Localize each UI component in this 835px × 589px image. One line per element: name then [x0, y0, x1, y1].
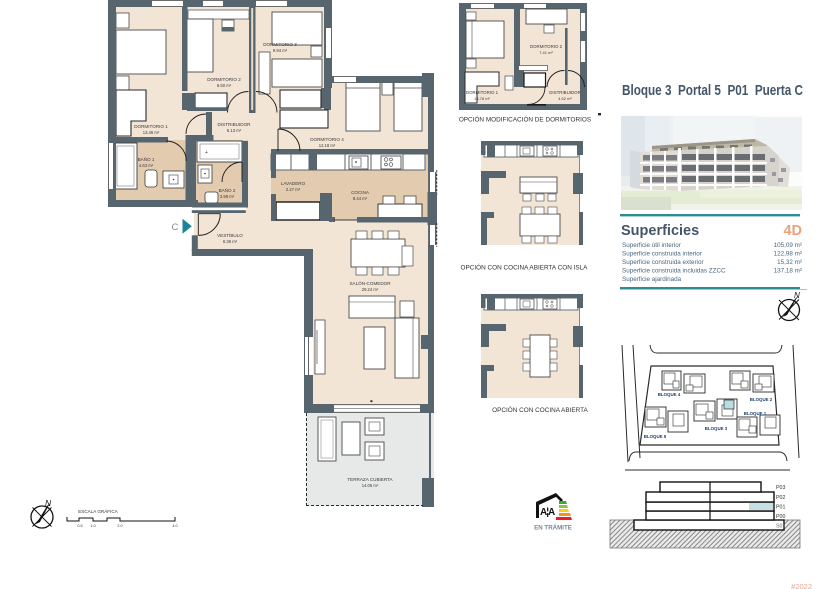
svg-text:DISTRIBUIDOR: DISTRIBUIDOR: [218, 122, 252, 127]
svg-text:8.50 m²: 8.50 m²: [217, 83, 232, 88]
svg-text:DORMITORIO 2: DORMITORIO 2: [530, 44, 563, 49]
svg-text:C: C: [172, 222, 179, 233]
svg-text:P01: P01: [776, 505, 785, 511]
svg-text:DORMITORIO 3: DORMITORIO 3: [263, 42, 297, 47]
svg-text:4.0: 4.0: [172, 524, 177, 528]
svg-text:DISTRIBUIDOR: DISTRIBUIDOR: [549, 90, 580, 95]
svg-text:7.41 m²: 7.41 m²: [539, 50, 553, 55]
svg-text:P00: P00: [776, 514, 785, 520]
svg-text:DORMITORIO 1: DORMITORIO 1: [134, 124, 168, 129]
svg-text:P03: P03: [776, 485, 785, 491]
svg-text:137,18 m²: 137,18 m²: [774, 268, 802, 275]
svg-text:5.13 m²: 5.13 m²: [227, 128, 242, 133]
svg-text:14.06 m²: 14.06 m²: [362, 483, 379, 488]
svg-text:1.0: 1.0: [90, 524, 95, 528]
svg-text:Superficie construida interior: Superficie construida interior: [622, 251, 702, 258]
svg-text:Superficie construida incluida: Superficie construida incluidas ZZCC: [622, 268, 726, 275]
svg-text:0.5: 0.5: [77, 524, 82, 528]
svg-text:4.52 m²: 4.52 m²: [558, 96, 572, 101]
svg-text:P02: P02: [776, 495, 785, 501]
svg-text:N: N: [45, 498, 52, 508]
svg-text:3.98 m²: 3.98 m²: [220, 194, 235, 199]
svg-text:105,09 m²: 105,09 m²: [774, 242, 802, 249]
svg-text:OPCIÓN MODIFICACIÓN DE DORMITO: OPCIÓN MODIFICACIÓN DE DORMITORIOS: [459, 115, 591, 124]
svg-text:SALÓN-COMEDOR: SALÓN-COMEDOR: [349, 280, 391, 286]
svg-text:9.94 m²: 9.94 m²: [273, 48, 288, 53]
svg-text:OPCIÓN CON COCINA ABIERTA CON: OPCIÓN CON COCINA ABIERTA CON ISLA: [461, 263, 589, 272]
svg-text:COCINA: COCINA: [351, 190, 370, 195]
svg-text:Superficie ajardinada: Superficie ajardinada: [622, 276, 682, 283]
svg-text:BLOQUE 3: BLOQUE 3: [705, 426, 728, 431]
svg-text:13.46 m²: 13.46 m²: [143, 130, 160, 135]
svg-text:14.78 m²: 14.78 m²: [474, 96, 490, 101]
svg-text:DORMITORIO 4: DORMITORIO 4: [310, 137, 344, 142]
svg-text:BAÑO 2: BAÑO 2: [219, 187, 236, 193]
svg-text:2.0: 2.0: [117, 524, 122, 528]
svg-text:8.44 m²: 8.44 m²: [353, 196, 368, 201]
svg-text:A¦A: A¦A: [540, 507, 555, 518]
svg-text:S01: S01: [776, 524, 785, 530]
svg-text:4.63 m²: 4.63 m²: [139, 163, 154, 168]
svg-text:BLOQUE 4: BLOQUE 4: [658, 392, 681, 397]
svg-text:2.27 m²: 2.27 m²: [286, 187, 301, 192]
svg-text:LAVADERO: LAVADERO: [281, 181, 306, 186]
svg-text:+: +: [205, 150, 208, 156]
svg-text:BAÑO 1: BAÑO 1: [138, 156, 155, 162]
svg-text:BLOQUE 5: BLOQUE 5: [644, 434, 667, 439]
svg-text:ESCALA GRÁFICA: ESCALA GRÁFICA: [78, 508, 119, 514]
svg-text:TERRAZA CUBIERTA: TERRAZA CUBIERTA: [347, 477, 393, 482]
svg-text:BLOQUE 2: BLOQUE 2: [750, 397, 773, 402]
svg-text:Superficie construida exterior: Superficie construida exterior: [622, 259, 704, 266]
svg-text:VESTÍBULO: VESTÍBULO: [217, 232, 243, 238]
svg-text:Superficies: Superficies: [621, 223, 699, 239]
svg-text:Bloque 3 Portal 5 P01 Puert: Bloque 3 Portal 5 P01 Puerta C: [622, 82, 803, 99]
svg-text:15,32 m²: 15,32 m²: [777, 259, 802, 266]
svg-text:12.18 m²: 12.18 m²: [319, 143, 336, 148]
svg-text:DORMITORIO 1: DORMITORIO 1: [466, 90, 499, 95]
svg-text:4D: 4D: [783, 223, 802, 239]
svg-text:6.36 m²: 6.36 m²: [223, 239, 238, 244]
svg-text:N: N: [794, 291, 800, 300]
svg-text:#2022: #2022: [791, 582, 812, 589]
svg-text:Superficie útil interior: Superficie útil interior: [622, 242, 681, 249]
svg-text:OPCIÓN CON COCINA ABIERTA: OPCIÓN CON COCINA ABIERTA: [492, 405, 588, 414]
svg-text:29.24 m²: 29.24 m²: [362, 287, 379, 292]
svg-text:DORMITORIO 2: DORMITORIO 2: [207, 77, 241, 82]
svg-text:122,98 m²: 122,98 m²: [774, 251, 802, 258]
svg-text:BLOQUE 1: BLOQUE 1: [744, 411, 767, 416]
svg-text:EN TRÁMITE: EN TRÁMITE: [534, 525, 572, 532]
